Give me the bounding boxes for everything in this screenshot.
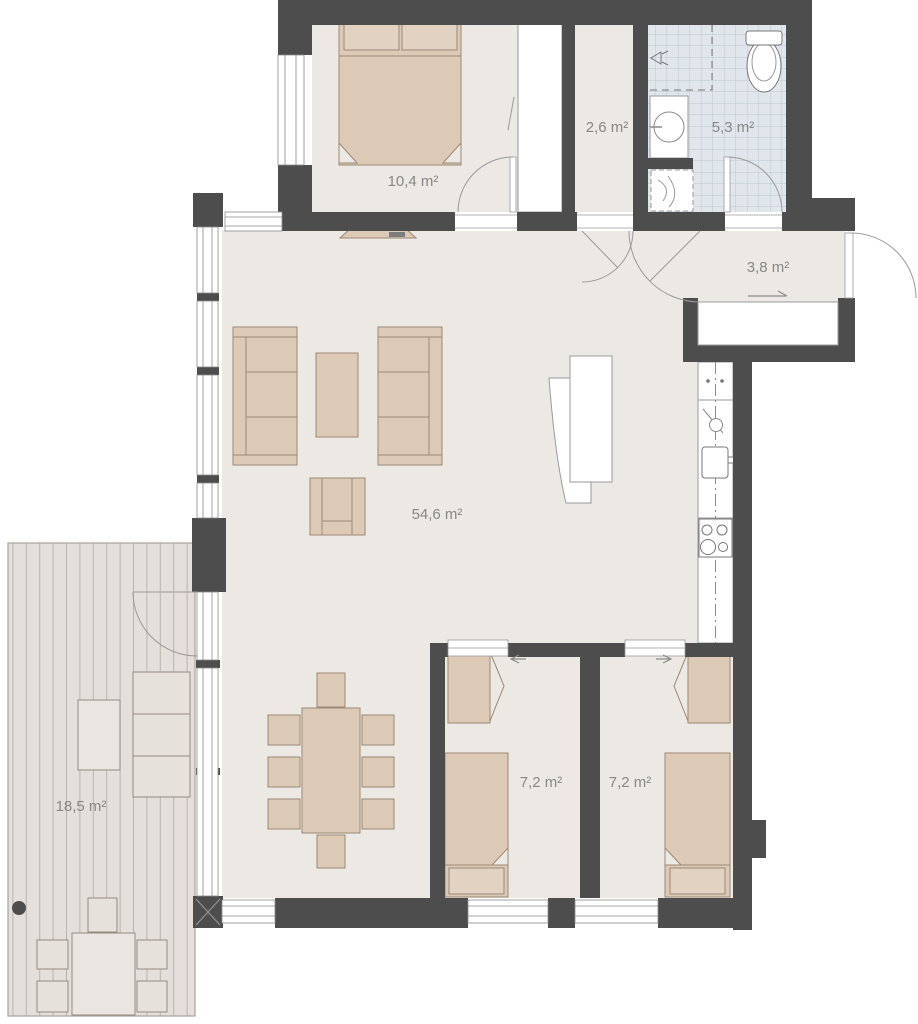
sliding-door bbox=[625, 640, 685, 656]
wall bbox=[278, 0, 812, 25]
wardrobe bbox=[448, 650, 490, 723]
washing-machine bbox=[651, 170, 693, 211]
window bbox=[197, 668, 218, 896]
terrace-dining-table bbox=[72, 933, 135, 1015]
pillow bbox=[670, 868, 725, 894]
wall bbox=[683, 298, 698, 345]
terrace-coffee-table bbox=[78, 700, 120, 770]
wall bbox=[275, 898, 468, 928]
wall bbox=[790, 198, 855, 214]
window-mullion bbox=[197, 475, 219, 483]
wall bbox=[580, 643, 600, 898]
dining-table bbox=[302, 708, 360, 833]
wall bbox=[193, 193, 223, 227]
wall bbox=[685, 643, 733, 657]
terrace-chair bbox=[88, 898, 117, 932]
floor-plan: 10,4 m² 2,6 m² 5,3 m² 3,8 m² 54,6 m² 7,2… bbox=[0, 0, 918, 1024]
sliding-door bbox=[448, 640, 508, 656]
chair bbox=[268, 757, 300, 787]
window bbox=[225, 212, 282, 231]
wall bbox=[548, 898, 575, 928]
terrace-chair bbox=[137, 940, 167, 969]
chair bbox=[317, 835, 345, 868]
bedroom-right-area-label: 7,2 m² bbox=[609, 774, 652, 791]
wall bbox=[633, 25, 648, 212]
hall-area-label: 2,6 m² bbox=[586, 119, 629, 136]
entry-closet bbox=[698, 302, 838, 345]
terrace bbox=[8, 543, 195, 1016]
window-mullion bbox=[197, 293, 219, 301]
stove bbox=[699, 519, 732, 557]
chair bbox=[317, 673, 345, 707]
wall bbox=[562, 5, 575, 231]
window bbox=[278, 55, 304, 165]
wall bbox=[192, 518, 226, 592]
wall bbox=[278, 25, 312, 55]
pillow bbox=[449, 868, 504, 894]
chair bbox=[362, 757, 394, 787]
sofa bbox=[233, 327, 297, 465]
entrance-door bbox=[845, 233, 916, 298]
armchair bbox=[310, 478, 365, 535]
main-bedroom-area-label: 10,4 m² bbox=[388, 173, 439, 190]
terrace-chair bbox=[37, 981, 68, 1012]
terrace-post bbox=[12, 901, 26, 915]
wall bbox=[838, 298, 855, 348]
bathroom-area-label: 5,3 m² bbox=[712, 119, 755, 136]
chair bbox=[268, 799, 300, 829]
window bbox=[575, 900, 658, 923]
window-mullion bbox=[196, 660, 220, 668]
terrace-door bbox=[197, 592, 218, 660]
corner-column bbox=[193, 896, 223, 928]
pillow bbox=[402, 24, 457, 50]
wall bbox=[733, 347, 752, 930]
wall bbox=[648, 158, 693, 169]
main-bedroom-furniture bbox=[339, 20, 461, 165]
entry-area-label: 3,8 m² bbox=[747, 259, 790, 276]
tv-base bbox=[389, 232, 405, 237]
wall bbox=[786, 25, 812, 215]
window bbox=[197, 301, 218, 367]
wall bbox=[752, 820, 766, 858]
living-area-label: 54,6 m² bbox=[412, 506, 463, 523]
chair bbox=[268, 715, 300, 745]
built-in-wardrobe bbox=[518, 6, 562, 212]
kitchen-counter bbox=[698, 362, 736, 643]
toilet bbox=[746, 31, 782, 92]
pillow bbox=[344, 24, 399, 50]
sofa bbox=[378, 327, 442, 465]
wall bbox=[683, 345, 855, 362]
wardrobe bbox=[688, 650, 730, 723]
wall bbox=[445, 643, 448, 657]
wall bbox=[600, 643, 625, 657]
chair bbox=[362, 715, 394, 745]
bathroom-sink bbox=[650, 96, 688, 158]
wall bbox=[282, 212, 455, 231]
bedroom-left-area-label: 7,2 m² bbox=[520, 774, 563, 791]
chair bbox=[362, 799, 394, 829]
window bbox=[197, 375, 218, 475]
window bbox=[197, 483, 218, 518]
window-mullion bbox=[197, 367, 219, 375]
window bbox=[468, 900, 548, 923]
window bbox=[222, 900, 275, 923]
terrace-chair bbox=[137, 981, 167, 1012]
wall bbox=[430, 643, 445, 898]
bedroom-right-furniture bbox=[665, 650, 730, 897]
floor-plan-drawing: 10,4 m² 2,6 m² 5,3 m² 3,8 m² 54,6 m² 7,2… bbox=[0, 0, 918, 1024]
terrace-chair bbox=[37, 940, 68, 969]
window bbox=[197, 227, 218, 293]
coffee-table bbox=[316, 353, 358, 437]
terrace-sofa bbox=[133, 672, 190, 797]
terrace-area-label: 18,5 m² bbox=[56, 798, 107, 815]
